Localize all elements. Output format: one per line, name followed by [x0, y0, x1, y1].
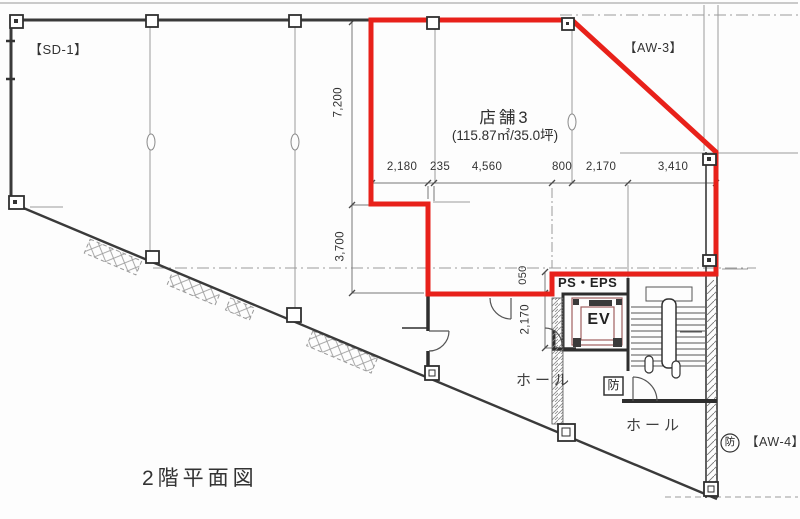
floor-plan-canvas: 【SD-1】 【AW-3】 店舗3 (115.87㎡/35.0坪) 2,180 …: [0, 0, 800, 519]
stair-newel-left: [645, 356, 653, 373]
dim-7200: 7,200: [333, 79, 346, 125]
dim-3700: 3,700: [335, 223, 348, 269]
label-elevator: EV: [584, 311, 614, 329]
tenant-name-label: 店舗3: [430, 109, 580, 127]
shaft-wall-hatch: [552, 298, 563, 424]
fire-shutter-markers: [604, 377, 739, 452]
label-fire-shutter-circle: 防: [721, 437, 739, 449]
floor-plan-drawing: [0, 0, 800, 519]
tenant-outline-red: [371, 20, 716, 294]
stair-handrail: [662, 299, 676, 368]
tenant-area-label: (115.87㎡/35.0坪): [415, 129, 595, 144]
staircase: [631, 287, 705, 378]
label-aw3: 【AW-3】: [624, 42, 683, 56]
page-title: 2階平面図: [142, 467, 258, 490]
dimension-lines: [352, 22, 716, 348]
dim-050: 050: [517, 260, 529, 290]
right-wall-hatch: [707, 280, 717, 486]
label-ps-eps: PS・EPS: [558, 276, 617, 290]
stair-newel-right: [672, 361, 680, 378]
dim-3410: 3,410: [650, 161, 696, 174]
label-sd1: 【SD-1】: [29, 43, 88, 57]
dim-2170-vertical: 2,170: [520, 296, 533, 342]
label-fire-shutter-box: 防: [604, 379, 623, 392]
dim-235: 235: [417, 161, 463, 174]
label-hall-lower: ホール: [626, 418, 683, 435]
label-aw4: 【AW-4】: [746, 436, 800, 450]
site-hatch-panels: [84, 239, 377, 373]
dim-2170-top: 2,170: [578, 161, 624, 174]
dim-4560: 4,560: [464, 161, 510, 174]
label-hall-upper: ホール: [516, 373, 573, 390]
